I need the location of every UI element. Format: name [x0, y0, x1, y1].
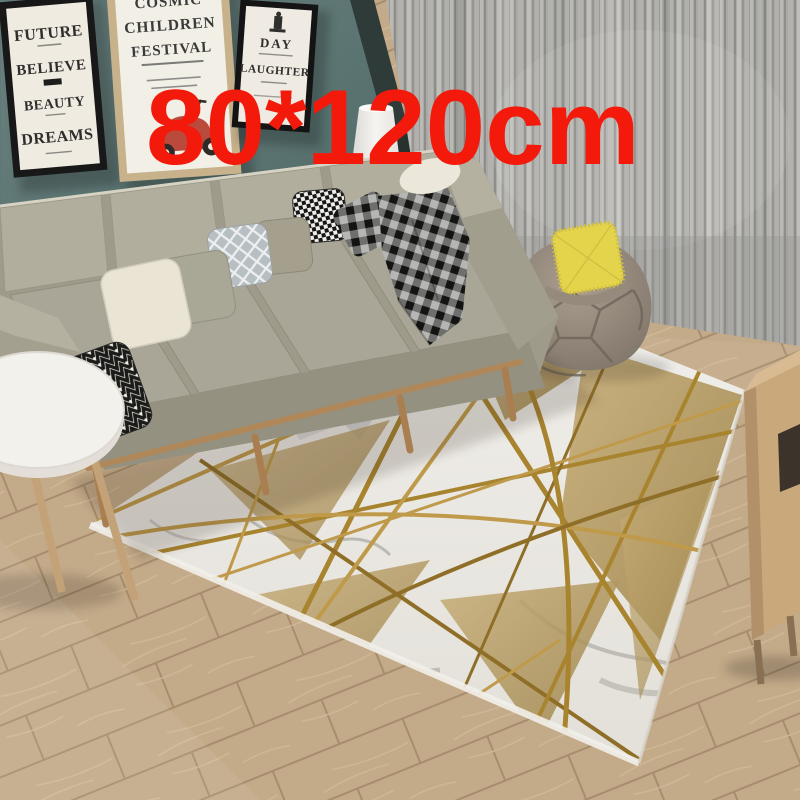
pillow-cream	[99, 257, 194, 352]
poster-future: FUTURE BELIEVE BEAUTY DREAMS	[0, 0, 121, 194]
bench-leg	[790, 616, 794, 656]
bench-leg	[757, 640, 761, 684]
yellow-pillow	[551, 221, 625, 295]
product-photo-living-room: FUTURE BELIEVE BEAUTY DREAMS COSMIC CHIL…	[0, 0, 800, 800]
bench-recess	[778, 424, 800, 492]
size-label: 80*120cm	[146, 74, 640, 181]
poster-line: DAY	[260, 35, 294, 52]
